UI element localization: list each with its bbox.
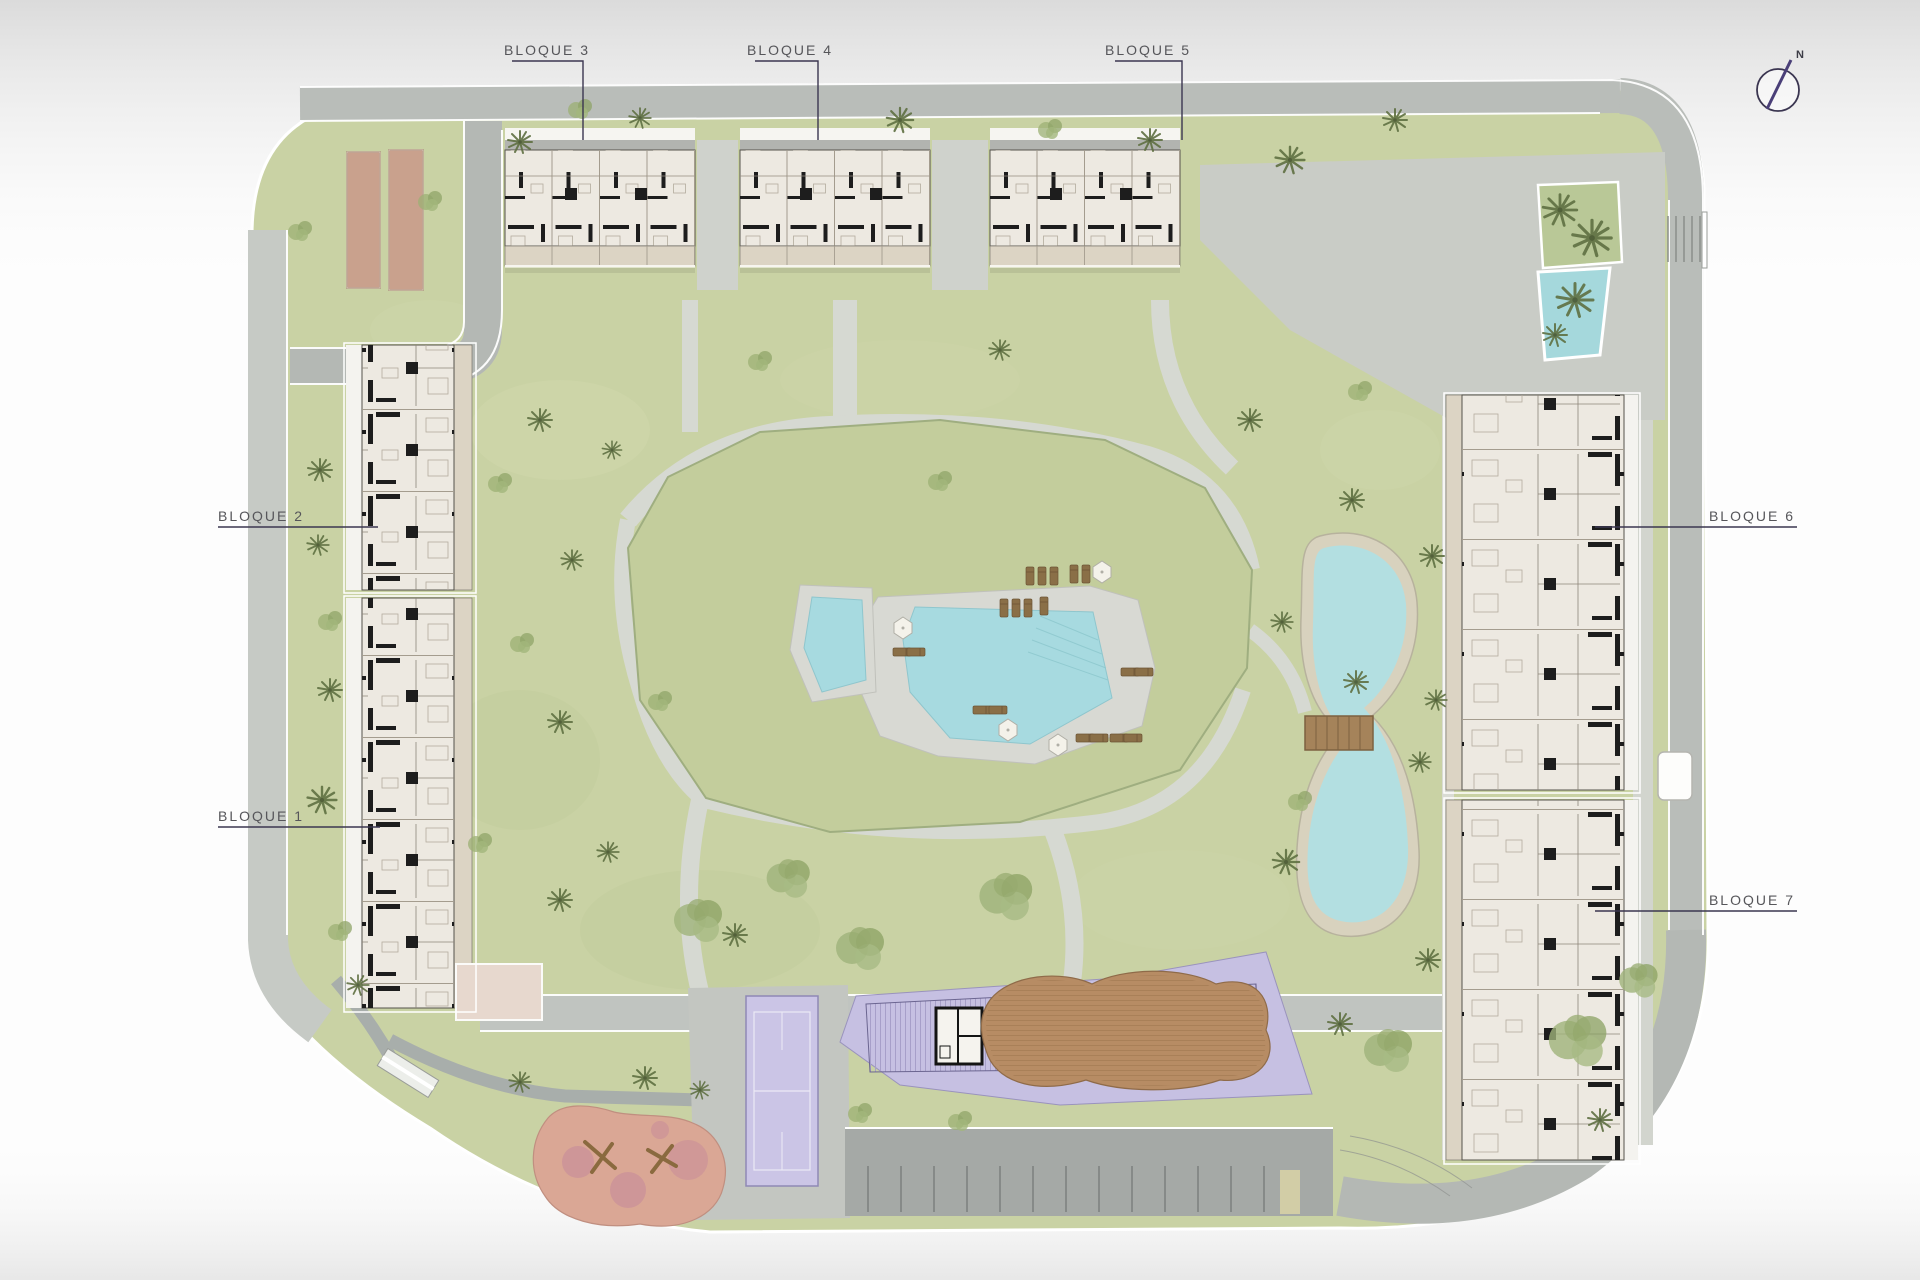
label-bloque-2: BLOQUE 2 (218, 508, 304, 524)
plaza-pool (1538, 268, 1610, 360)
pergola (1658, 752, 1692, 800)
building-bloque-7 (1444, 798, 1640, 1164)
label-bloque-7: BLOQUE 7 (1709, 892, 1795, 908)
label-bloque-4: BLOQUE 4 (747, 42, 833, 58)
label-bloque-5: BLOQUE 5 (1105, 42, 1191, 58)
tennis-court (746, 996, 818, 1186)
building-bloque-2 (344, 343, 476, 593)
building-bloque-3 (505, 128, 695, 273)
building-bloque-5 (990, 128, 1180, 273)
site-plan: BLOQUE 3 BLOQUE 4 BLOQUE 5 BLOQUE 2 BLOQ… (0, 0, 1920, 1280)
building-bloque-6 (1444, 393, 1640, 793)
block-gap-court (932, 140, 988, 290)
master-plan-page: BLOQUE 3 BLOQUE 4 BLOQUE 5 BLOQUE 2 BLOQ… (0, 0, 1920, 1280)
block-gap-court (697, 140, 738, 290)
building-bloque-4 (740, 128, 930, 273)
label-bloque-6: BLOQUE 6 (1709, 508, 1795, 524)
label-bloque-3: BLOQUE 3 (504, 42, 590, 58)
compass-north-label: N (1796, 49, 1805, 61)
wooden-bridge (1305, 716, 1373, 750)
label-bloque-1: BLOQUE 1 (218, 808, 304, 824)
pool-house (936, 1008, 982, 1064)
